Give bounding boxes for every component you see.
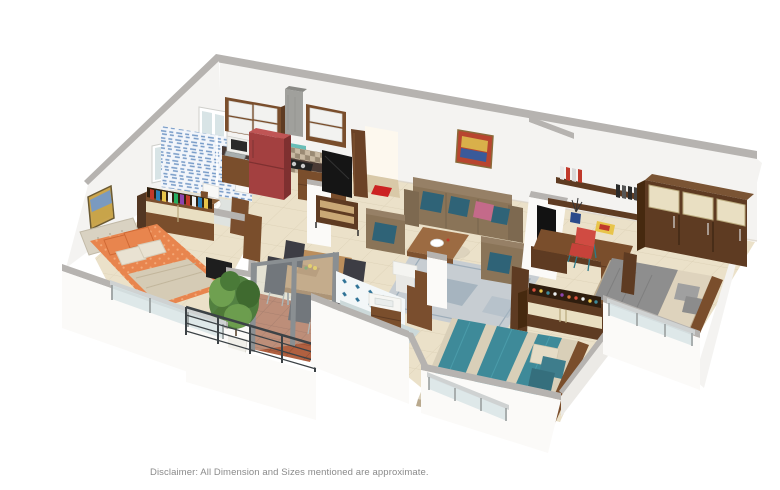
entrance-doorway <box>365 126 398 180</box>
red-refrigerator <box>249 128 291 200</box>
armchair-left <box>366 208 405 255</box>
bedroom1-door-leaf[interactable] <box>243 213 262 262</box>
hall-wall-stub-face <box>427 257 447 309</box>
white-bowl <box>431 239 444 247</box>
floor-plan-page: Disclaimer: All Dimension and Sizes ment… <box>0 0 780 490</box>
entrance <box>351 126 400 198</box>
floor-plan-3d-render <box>0 0 780 490</box>
sofa-pillow-teal-3 <box>491 206 510 225</box>
disclaimer-text: Disclaimer: All Dimension and Sizes ment… <box>150 467 429 478</box>
living-wall-painting <box>456 130 493 168</box>
